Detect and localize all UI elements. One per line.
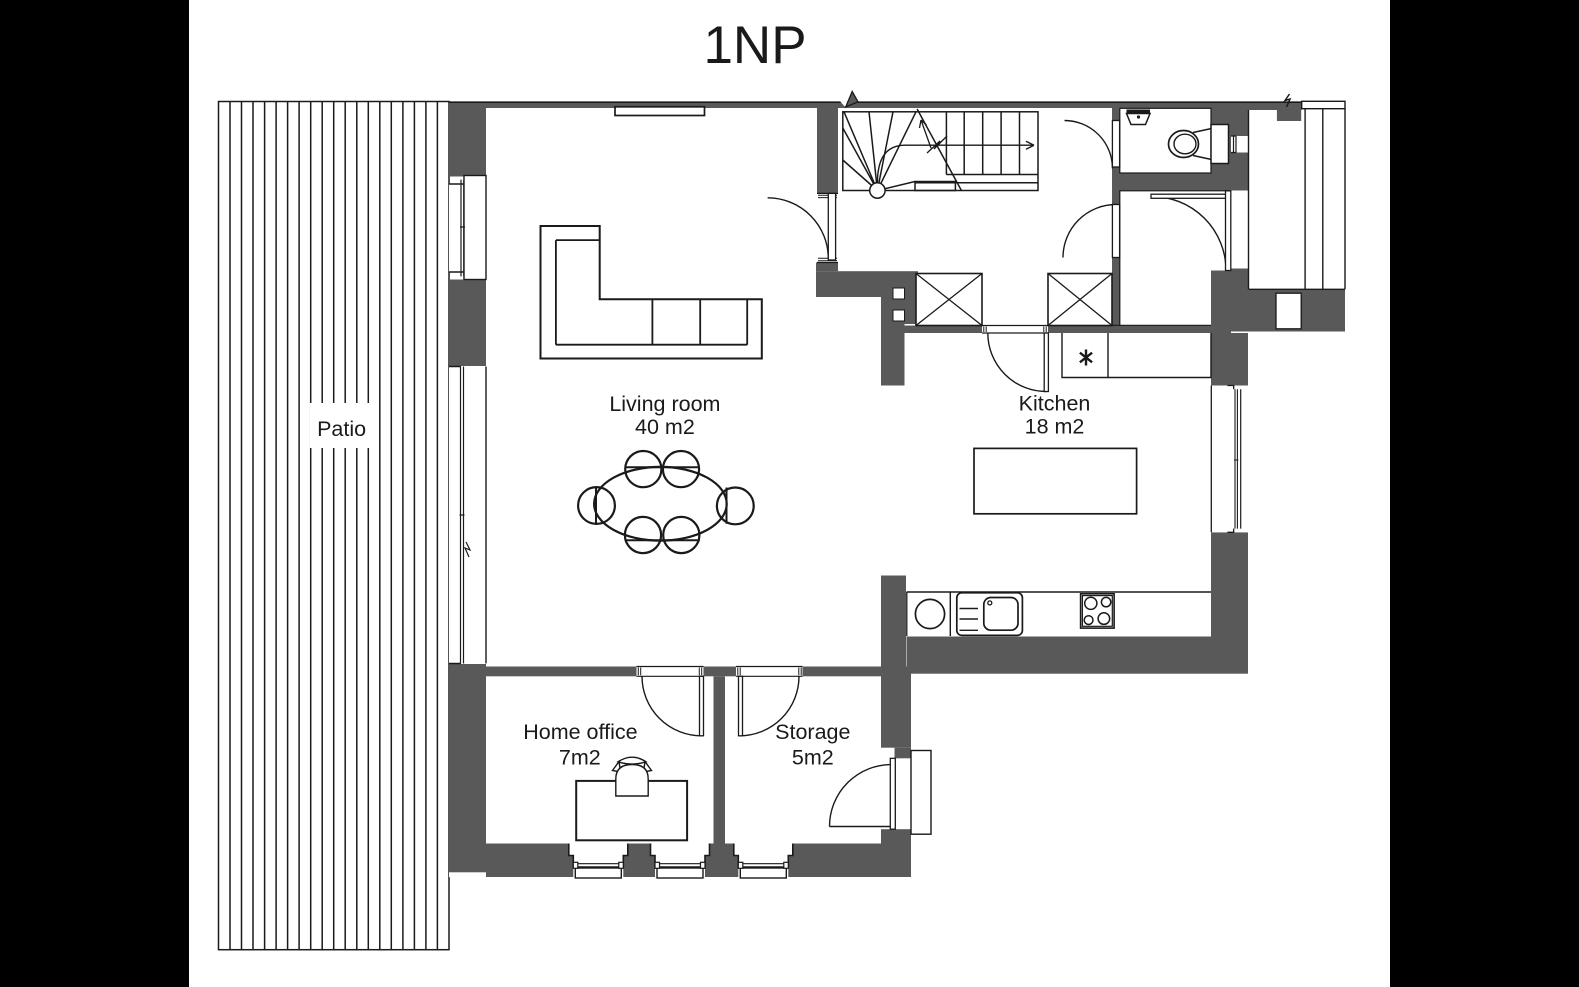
- svg-text:1NP: 1NP: [703, 16, 806, 75]
- svg-text:7m2: 7m2: [559, 746, 601, 770]
- svg-text:40 m2: 40 m2: [635, 415, 695, 439]
- svg-text:5m2: 5m2: [792, 746, 834, 770]
- svg-text:Kitchen: Kitchen: [1019, 392, 1091, 416]
- svg-text:18 m2: 18 m2: [1025, 415, 1085, 439]
- svg-text:Living room: Living room: [609, 392, 720, 416]
- svg-text:Home office: Home office: [523, 720, 637, 744]
- svg-text:Storage: Storage: [775, 720, 850, 744]
- svg-text:Patio: Patio: [317, 417, 366, 441]
